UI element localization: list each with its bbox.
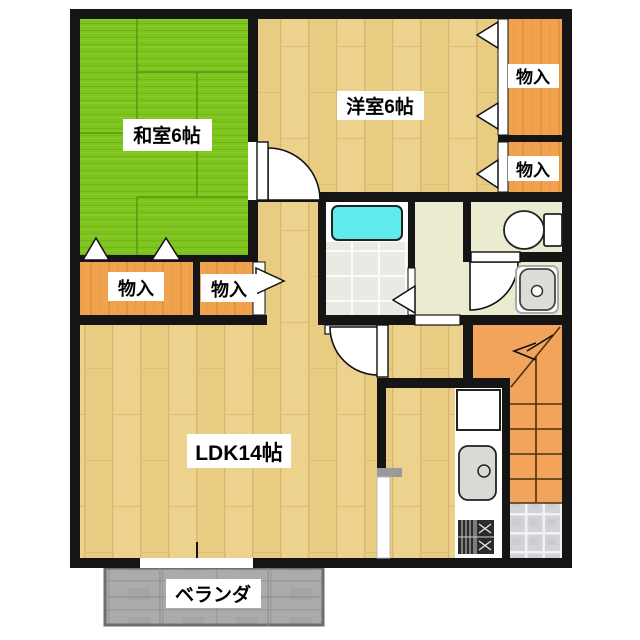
bathroom-tile-floor bbox=[326, 242, 408, 315]
storage-left-small-label: 物入 bbox=[211, 279, 247, 300]
washitsu-label: 和室6帖 bbox=[133, 124, 201, 147]
stairs-upper-landing bbox=[473, 325, 562, 378]
storage-right-mid-label: 物入 bbox=[516, 160, 550, 180]
refrigerator-space bbox=[457, 390, 500, 430]
partition-end-cap bbox=[377, 468, 402, 477]
toilet bbox=[504, 211, 562, 249]
gas-stove bbox=[458, 520, 494, 554]
veranda-label: ベランダ bbox=[175, 583, 251, 606]
floorplan-canvas: 和室6帖 洋室6帖 LDK14帖 ベランダ 物入 物入 物入 物入 bbox=[0, 0, 640, 640]
bathtub bbox=[332, 206, 402, 240]
floorplan-drawing: 和室6帖 洋室6帖 LDK14帖 ベランダ 物入 物入 物入 物入 bbox=[0, 0, 640, 640]
washroom-corridor-floor bbox=[415, 202, 463, 315]
kitchen-sink bbox=[459, 446, 496, 500]
washbasin bbox=[516, 266, 558, 313]
storage-left-large-label: 物入 bbox=[118, 278, 154, 299]
storage-right-top-label: 物入 bbox=[516, 67, 550, 87]
entry-tile-floor bbox=[510, 503, 562, 558]
youshitsu-label: 洋室6帖 bbox=[346, 95, 414, 118]
hallway-floor bbox=[258, 202, 318, 325]
ldk-label: LDK14帖 bbox=[195, 442, 283, 465]
kitchen-sliding-screen bbox=[377, 477, 390, 558]
